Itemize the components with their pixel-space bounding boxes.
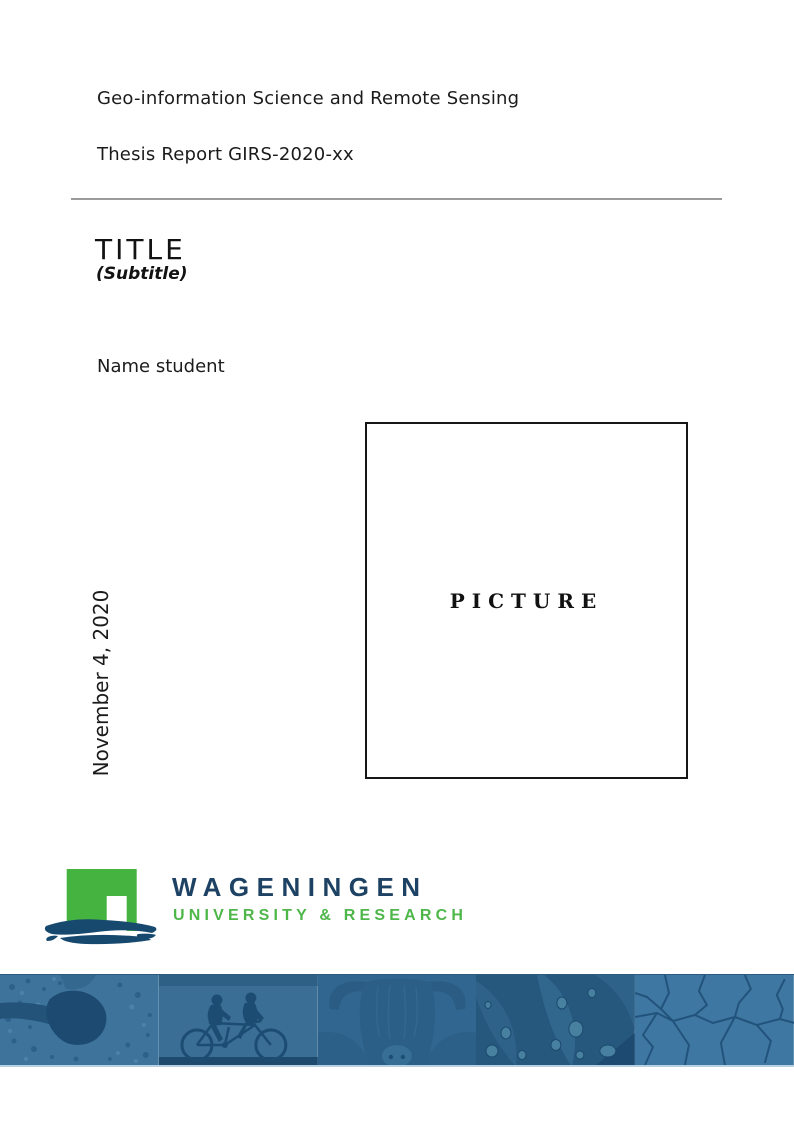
wur-logo-tagline: UNIVERSITY & RESEARCH: [173, 907, 467, 925]
picture-placeholder-box: PICTURE: [365, 422, 688, 779]
banner-aerial-map-photo: [0, 975, 159, 1065]
photo-banner-strip: [0, 974, 794, 1067]
author-name: Name student: [97, 356, 225, 377]
thesis-title: TITLE: [95, 233, 186, 266]
thesis-cover-page: Geo-information Science and Remote Sensi…: [0, 0, 794, 1123]
banner-highland-cow-photo: [318, 975, 477, 1065]
date-vertical-text: November 4, 2020: [89, 573, 111, 793]
banner-tandem-cyclists-photo: [159, 975, 318, 1065]
report-number-line: Thesis Report GIRS-2020-xx: [97, 144, 354, 165]
horizontal-divider: [71, 198, 722, 200]
banner-cracked-earth-photo: [635, 975, 794, 1065]
wur-logo-wordmark: WAGENINGEN: [172, 872, 428, 903]
banner-leaf-droplets-photo: [476, 975, 635, 1065]
thesis-subtitle: (Subtitle): [96, 264, 188, 284]
wur-gate-logo-icon: [42, 862, 162, 954]
department-line: Geo-information Science and Remote Sensi…: [97, 88, 519, 109]
picture-placeholder-label: PICTURE: [450, 589, 604, 613]
